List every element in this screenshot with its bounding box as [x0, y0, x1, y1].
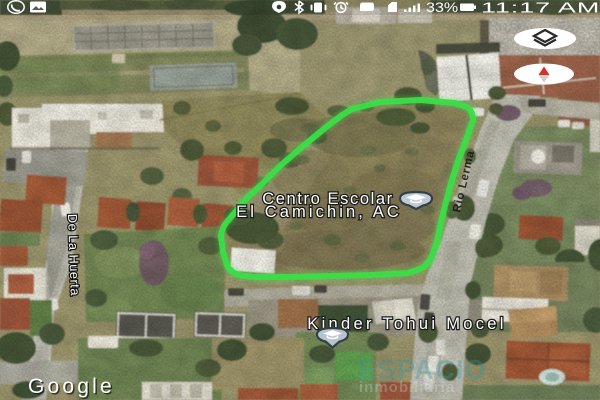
- svg-text:11:17 AM: 11:17 AM: [481, 0, 600, 16]
- svg-text:El Camichin, AC: El Camichin, AC: [236, 203, 402, 221]
- svg-text:De La Huerta: De La Huerta: [65, 214, 83, 297]
- svg-text:inmobiliaria: inmobiliaria: [359, 379, 455, 396]
- svg-text:Google: Google: [28, 375, 115, 398]
- svg-text:33%: 33%: [426, 0, 458, 16]
